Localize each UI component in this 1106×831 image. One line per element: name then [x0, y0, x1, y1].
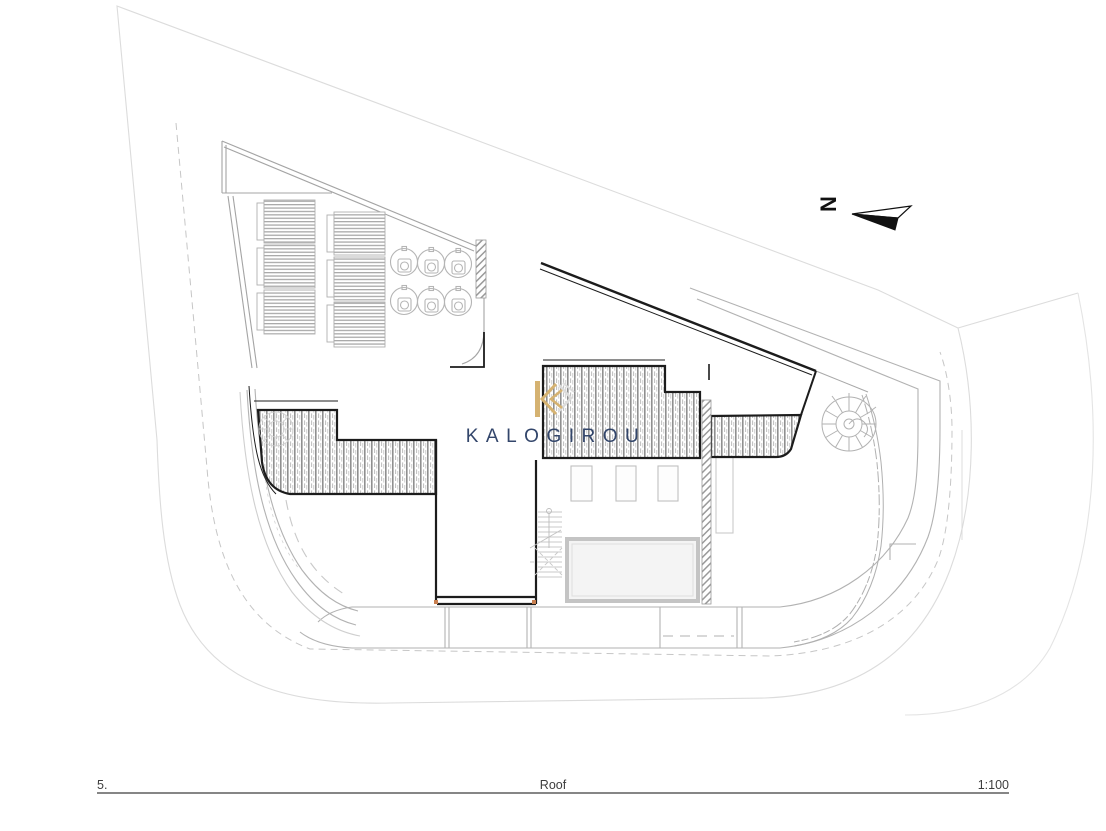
wall-section-central — [702, 400, 711, 604]
roof-pool — [567, 539, 698, 601]
solar-panel — [257, 200, 315, 334]
boiler-unit — [445, 249, 472, 278]
brand-wordmark: KALOGIROU — [466, 426, 646, 447]
skylight — [658, 466, 678, 501]
roof-deck-left — [249, 386, 436, 494]
boiler-unit — [391, 286, 418, 315]
skylights — [571, 466, 678, 501]
boiler-unit — [418, 248, 445, 277]
skylight — [571, 466, 592, 501]
wall-section-top — [476, 240, 486, 298]
solar-panel — [327, 212, 385, 347]
stair-void-walls — [436, 440, 536, 604]
drawing-sheet: N KALOGIROU 5. Roof 1:100 — [0, 0, 1106, 831]
boiler-unit — [445, 287, 472, 316]
straight-staircase — [530, 509, 562, 578]
threshold-dot — [532, 600, 536, 604]
solar-water-heaters — [391, 247, 472, 316]
threshold-dot — [434, 600, 438, 604]
roof-deck-right — [711, 415, 801, 457]
boiler-unit — [418, 287, 445, 316]
skylight — [616, 466, 636, 501]
roof-plan-canvas: N KALOGIROU — [0, 0, 1106, 831]
spiral-staircase — [822, 393, 876, 451]
north-label: N — [816, 196, 841, 212]
boiler-unit — [391, 247, 418, 276]
solar-panel-array — [257, 200, 385, 347]
north-arrow: N — [816, 196, 911, 230]
